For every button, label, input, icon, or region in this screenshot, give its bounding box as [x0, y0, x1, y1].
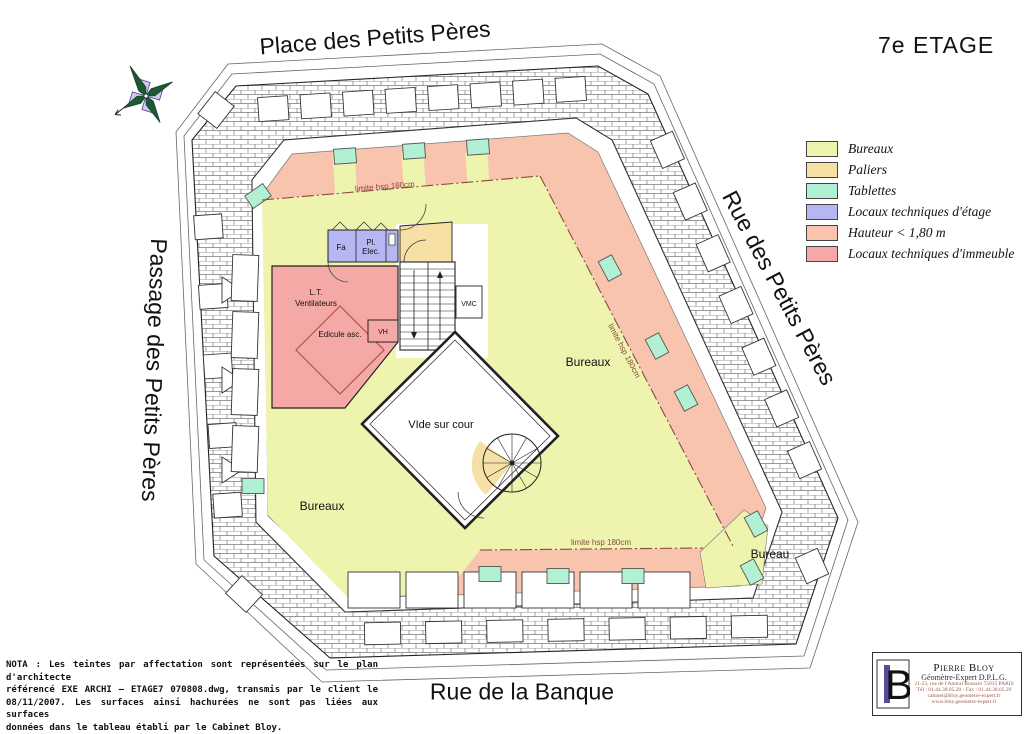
stamp-web: www.bloy.geometre-expert.fr	[910, 700, 1018, 706]
room	[348, 572, 400, 608]
bay	[465, 151, 490, 200]
tablette	[403, 143, 426, 159]
palier-stairs	[400, 222, 452, 262]
window	[670, 616, 706, 639]
legend-label: Bureaux	[848, 141, 893, 157]
nota-line: référencé EXE ARCHI — ETAGE7 070808.dwg,…	[6, 684, 378, 697]
room	[231, 426, 259, 473]
page-title: 7e ETAGE	[878, 32, 994, 59]
window	[426, 621, 462, 644]
legend-swatch-lt-etage	[806, 204, 838, 220]
window	[385, 87, 416, 113]
tablette	[242, 479, 264, 494]
label-edicule-asc: Edicule asc.	[318, 330, 361, 339]
window	[731, 615, 767, 638]
label-vide-sur-cour: VIde sur cour	[408, 419, 474, 431]
room	[231, 255, 259, 302]
room	[406, 572, 458, 608]
label-vh: VH	[378, 329, 388, 336]
window	[343, 90, 374, 116]
legend-swatch-paliers	[806, 162, 838, 178]
legend-item-paliers: Paliers	[806, 162, 1014, 177]
window	[364, 622, 400, 645]
window	[555, 76, 586, 102]
svg-text:B: B	[885, 661, 910, 708]
label-bureau-bottom: Bureau	[751, 547, 790, 561]
tablette	[334, 148, 357, 164]
window	[470, 82, 501, 108]
window	[213, 492, 243, 518]
window	[487, 620, 523, 643]
tablette	[479, 567, 501, 582]
room	[638, 572, 690, 608]
compass-rose-icon	[98, 52, 186, 139]
window	[513, 79, 544, 105]
window	[300, 93, 331, 119]
legend-item-hauteur: Hauteur < 1,80 m	[806, 225, 1014, 240]
legend-swatch-hauteur	[806, 225, 838, 241]
stamp-logo-icon: B	[876, 659, 910, 709]
stairwell	[400, 262, 455, 350]
stamp-text: Pierre Bloy Géomètre-Expert D.P.L.G. 21-…	[910, 663, 1018, 706]
surveyor-stamp: B Pierre Bloy Géomètre-Expert D.P.L.G. 2…	[872, 652, 1022, 716]
tablette	[467, 139, 490, 155]
label-lt: L.T.	[310, 288, 323, 297]
label-vmc: VMC	[461, 301, 477, 308]
legend-item-bureaux: Bureaux	[806, 141, 1014, 156]
label-ventilateurs: Ventilateurs	[295, 299, 337, 308]
nota-line: données dans le tableau établi par le Ca…	[6, 722, 378, 734]
label-bureaux-left: Bureaux	[300, 499, 345, 513]
legend-label: Locaux techniques d'immeuble	[848, 246, 1014, 262]
window	[194, 214, 224, 240]
label-bureaux-right: Bureaux	[566, 355, 611, 369]
legend-label: Paliers	[848, 162, 887, 178]
legend-swatch-lt-immeuble	[806, 246, 838, 262]
label-pl: Pl.	[366, 238, 375, 247]
legend-label: Hauteur < 1,80 m	[848, 225, 946, 241]
tablette	[547, 569, 569, 584]
label-fa: Fa	[336, 243, 346, 252]
nota-line: NOTA : Les teintes par affectation sont …	[6, 659, 378, 684]
legend-item-lt-immeuble: Locaux techniques d'immeuble	[806, 246, 1014, 261]
legend: Bureaux Paliers Tablettes Locaux techniq…	[806, 141, 1014, 267]
legend-label: Locaux techniques d'étage	[848, 204, 991, 220]
tablette	[622, 569, 644, 584]
room	[231, 312, 259, 359]
legend-swatch-tablettes	[806, 183, 838, 199]
legend-swatch-bureaux	[806, 141, 838, 157]
street-label-bottom: Rue de la Banque	[430, 679, 614, 706]
label-elec: Elec.	[362, 247, 380, 256]
label-limite-bottom: limite hsp 180cm	[571, 538, 631, 547]
legend-label: Tablettes	[848, 183, 896, 199]
nota-line: 08/11/2007. Les surfaces ainsi hachurées…	[6, 697, 378, 722]
window	[258, 96, 289, 122]
window	[548, 619, 584, 642]
legend-item-tablettes: Tablettes	[806, 183, 1014, 198]
window	[428, 85, 459, 111]
room	[231, 369, 259, 416]
nota-note: NOTA : Les teintes par affectation sont …	[6, 659, 378, 734]
window	[609, 618, 645, 641]
legend-item-lt-etage: Locaux techniques d'étage	[806, 204, 1014, 219]
